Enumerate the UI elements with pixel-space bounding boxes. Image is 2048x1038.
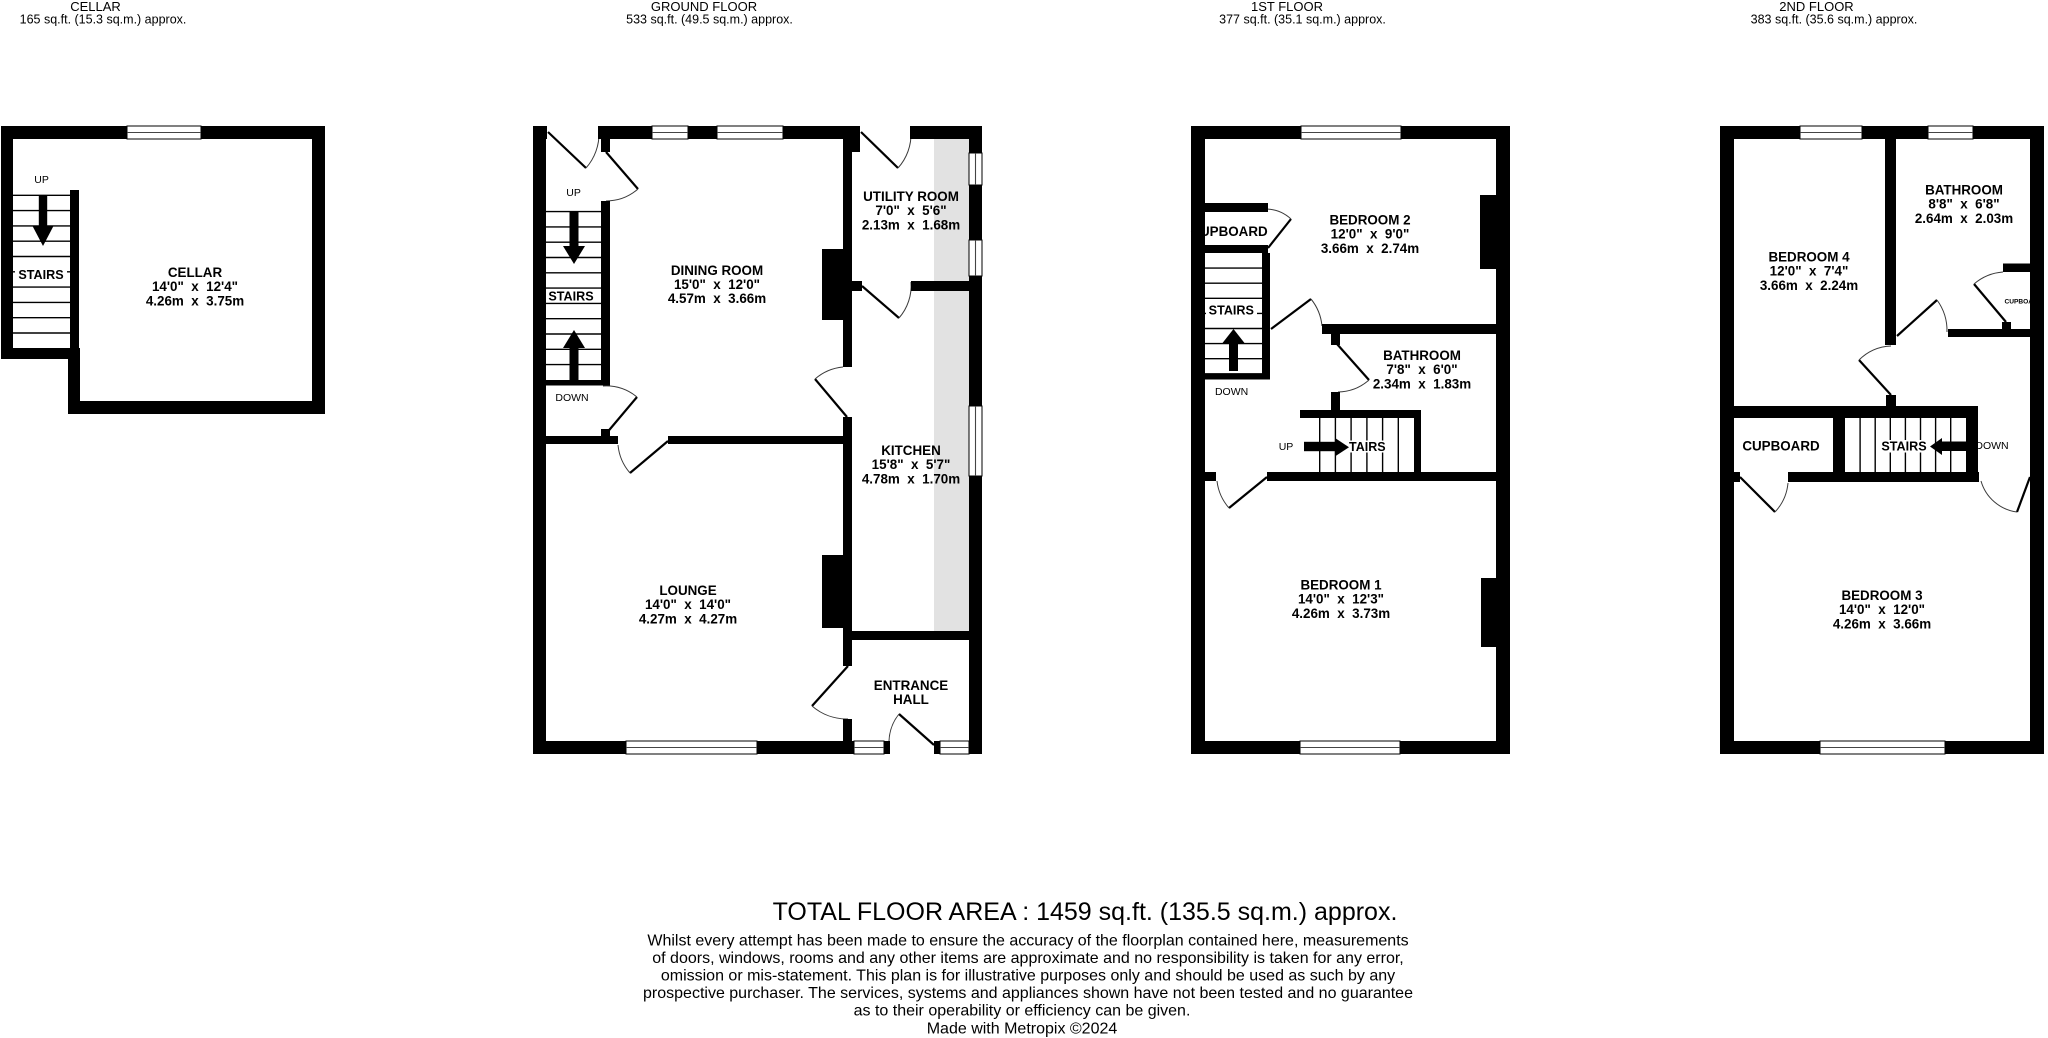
svg-text:8'8" x 6'8": 8'8" x 6'8" xyxy=(1928,197,1999,212)
svg-text:BEDROOM 3: BEDROOM 3 xyxy=(1841,588,1922,603)
svg-text:4.78m x 1.70m: 4.78m x 1.70m xyxy=(862,471,960,486)
svg-text:CUPBOARD: CUPBOARD xyxy=(1742,438,1820,453)
svg-text:165 sq.ft. (15.3 sq.m.) approx: 165 sq.ft. (15.3 sq.m.) approx. xyxy=(20,13,187,27)
svg-text:UP: UP xyxy=(1279,441,1294,453)
svg-text:STAIRS: STAIRS xyxy=(1209,304,1254,318)
svg-text:as to their operability or eff: as to their operability or efficiency ca… xyxy=(854,1003,1191,1020)
svg-text:2.34m x 1.83m: 2.34m x 1.83m xyxy=(1373,376,1471,391)
svg-text:BEDROOM 1: BEDROOM 1 xyxy=(1300,578,1382,593)
svg-text:DOWN: DOWN xyxy=(1975,440,2008,452)
svg-text:BATHROOM: BATHROOM xyxy=(1925,183,2003,198)
svg-text:omission or mis-statement. Thi: omission or mis-statement. This plan is … xyxy=(661,968,1395,985)
svg-text:UP: UP xyxy=(566,187,581,199)
svg-text:prospective purchaser. The ser: prospective purchaser. The services, sys… xyxy=(643,985,1413,1002)
svg-text:ENTRANCE: ENTRANCE xyxy=(874,678,948,693)
svg-text:14'0" x 12'3": 14'0" x 12'3" xyxy=(1298,592,1384,607)
svg-text:BATHROOM: BATHROOM xyxy=(1383,348,1461,363)
svg-text:15'0" x 12'0": 15'0" x 12'0" xyxy=(674,277,760,292)
svg-text:STAIRS: STAIRS xyxy=(548,290,593,304)
svg-text:14'0" x 14'0": 14'0" x 14'0" xyxy=(645,597,731,612)
svg-text:14'0" x 12'4": 14'0" x 12'4" xyxy=(152,279,238,294)
svg-text:383 sq.ft. (35.6 sq.m.) approx: 383 sq.ft. (35.6 sq.m.) approx. xyxy=(1751,13,1918,27)
svg-text:Whilst every attempt has been: Whilst every attempt has been made to en… xyxy=(647,932,1408,949)
svg-text:7'8" x 6'0": 7'8" x 6'0" xyxy=(1386,362,1457,377)
svg-text:STAIRS: STAIRS xyxy=(1881,439,1926,453)
svg-text:4.26m x 3.73m: 4.26m x 3.73m xyxy=(1292,606,1390,621)
svg-text:2.64m x 2.03m: 2.64m x 2.03m xyxy=(1915,211,2013,226)
svg-text:4.27m x 4.27m: 4.27m x 4.27m xyxy=(639,611,737,626)
svg-text:STAIRS: STAIRS xyxy=(18,268,63,282)
svg-text:533 sq.ft. (49.5 sq.m.) approx: 533 sq.ft. (49.5 sq.m.) approx. xyxy=(626,13,793,27)
svg-text:2.13m x 1.68m: 2.13m x 1.68m xyxy=(862,217,960,232)
svg-text:BEDROOM 4: BEDROOM 4 xyxy=(1768,250,1850,265)
svg-text:7'0" x 5'6": 7'0" x 5'6" xyxy=(875,203,946,218)
svg-text:3.66m x 2.74m: 3.66m x 2.74m xyxy=(1321,241,1419,256)
svg-text:12'0" x 9'0": 12'0" x 9'0" xyxy=(1331,227,1410,242)
svg-text:DOWN: DOWN xyxy=(1215,386,1248,398)
svg-text:DOWN: DOWN xyxy=(555,392,588,404)
svg-text:3.66m x 2.24m: 3.66m x 2.24m xyxy=(1760,278,1858,293)
svg-text:UTILITY ROOM: UTILITY ROOM xyxy=(863,189,959,204)
svg-text:DINING ROOM: DINING ROOM xyxy=(671,263,763,278)
svg-text:HALL: HALL xyxy=(893,692,929,707)
svg-text:TOTAL FLOOR AREA : 1459 sq.ft.: TOTAL FLOOR AREA : 1459 sq.ft. (135.5 sq… xyxy=(773,898,1398,926)
svg-text:of doors, windows, rooms and a: of doors, windows, rooms and any other i… xyxy=(652,950,1403,967)
svg-text:4.26m x 3.66m: 4.26m x 3.66m xyxy=(1833,616,1931,631)
svg-text:377 sq.ft. (35.1 sq.m.) approx: 377 sq.ft. (35.1 sq.m.) approx. xyxy=(1219,13,1386,27)
svg-text:Made with Metropix ©2024: Made with Metropix ©2024 xyxy=(927,1020,1118,1037)
svg-text:TAIRS: TAIRS xyxy=(1349,440,1386,454)
svg-text:LOUNGE: LOUNGE xyxy=(659,583,716,598)
svg-text:12'0" x 7'4": 12'0" x 7'4" xyxy=(1770,264,1849,279)
svg-text:4.26m x 3.75m: 4.26m x 3.75m xyxy=(146,293,244,308)
svg-text:UP: UP xyxy=(34,174,49,186)
svg-text:BEDROOM 2: BEDROOM 2 xyxy=(1329,212,1410,227)
svg-text:KITCHEN: KITCHEN xyxy=(881,443,941,458)
svg-text:4.57m x 3.66m: 4.57m x 3.66m xyxy=(668,291,766,306)
svg-text:15'8" x 5'7": 15'8" x 5'7" xyxy=(872,457,951,472)
svg-text:CELLAR: CELLAR xyxy=(168,265,223,280)
svg-text:14'0" x 12'0": 14'0" x 12'0" xyxy=(1839,602,1925,617)
